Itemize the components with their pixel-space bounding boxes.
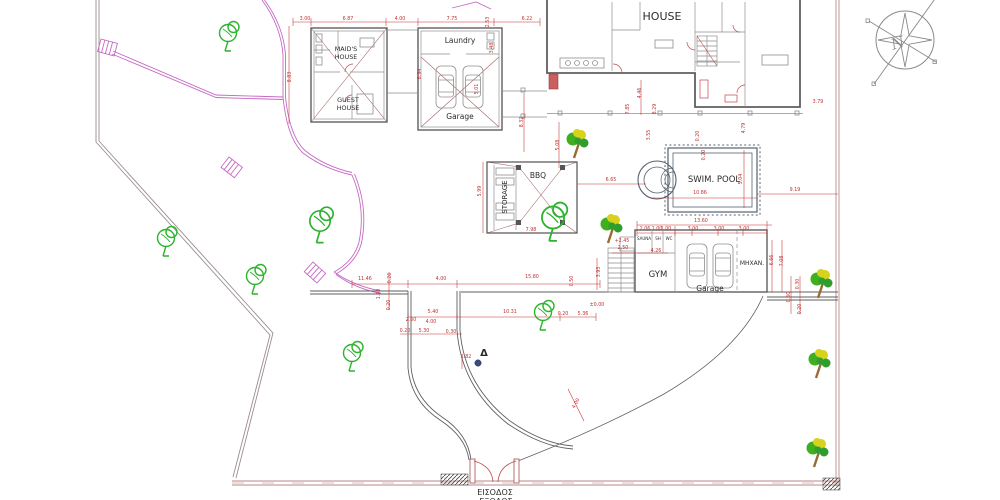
mhxan-label: MHXAN.	[740, 260, 764, 267]
corner-hatch-block	[823, 478, 840, 490]
dimension-label: 5.01	[474, 84, 480, 95]
dimension-label: 4.00	[426, 319, 437, 325]
entrance-gate: ΕΙΣΟΔΟΣ ΕΞΟΔΟΣ	[441, 459, 519, 500]
dimension-label: 5.40	[428, 309, 439, 315]
gate-post-left	[470, 459, 475, 483]
tree-outline	[220, 22, 240, 52]
guest-house-label-line2: HOUSE	[337, 104, 360, 112]
dimension-label: 5.36	[578, 311, 589, 317]
dimension-label: 8.94	[417, 69, 423, 80]
dimension-label: 6.22	[522, 16, 533, 22]
dimension-label: 15.80	[525, 274, 539, 280]
gym-stairs	[608, 248, 634, 292]
house-label: HOUSE	[643, 10, 682, 23]
dimension-label: 1.82	[461, 354, 472, 360]
dimension-label: +2.45	[615, 238, 630, 244]
delta-symbol: Δ	[480, 348, 488, 359]
car	[713, 244, 733, 288]
dimension-label: 13.60	[694, 218, 708, 224]
dimension-label: 3.00	[714, 226, 725, 232]
dimension-label: 7.85	[625, 104, 631, 115]
maids-house-label-line1: MAID'S	[335, 45, 358, 53]
dimension-label: 3.00	[688, 226, 699, 232]
maids-guest-house: MAID'S HOUSE GUEST HOUSE	[311, 28, 387, 122]
survey-point-dot	[475, 360, 481, 366]
sauna-label: SAUNA	[637, 236, 651, 241]
storage-label: STORAGE	[501, 180, 509, 213]
compass-north-arrow: N	[866, 0, 937, 86]
dimension-label: 8.32	[519, 117, 525, 128]
dimension-label: 4.46	[637, 88, 643, 99]
dimension-label: 6.87	[343, 16, 354, 22]
property-boundary	[96, 0, 840, 490]
main-house: HOUSE	[502, 0, 803, 118]
gym-garage-building: SAUNA SH WC GYM Garage MHXAN.	[608, 230, 767, 293]
gym-label: GYM	[649, 270, 668, 280]
dimension-label: 2.53	[485, 17, 491, 28]
site-plan: ΕΙΣΟΔΟΣ ΕΞΟΔΟΣ MAID'S HOUSE GUEST HOUSE	[0, 0, 1000, 500]
car	[436, 66, 456, 108]
tree-clump	[567, 129, 589, 158]
tree-clump	[807, 438, 829, 467]
dimension-label: 2.60	[406, 317, 417, 323]
car	[463, 66, 483, 108]
dimension-label: 6.66	[769, 255, 775, 266]
gate-hatch-block	[441, 474, 468, 485]
tree-outline	[344, 342, 364, 372]
dimension-label: 3.48	[489, 43, 495, 54]
dimension-label: 5.99	[477, 186, 483, 197]
house-stairs	[697, 36, 717, 66]
car	[687, 244, 707, 288]
tree-outline	[158, 227, 178, 257]
dimension-label: 6.65	[606, 177, 617, 183]
dimension-label: 3.55	[646, 130, 652, 141]
dimension-label: 7.98	[526, 227, 537, 233]
dimension-label: 0.20	[695, 131, 701, 142]
dimension-label: 3.79	[813, 99, 824, 105]
dimension-label: ±0.00	[590, 302, 605, 308]
dimension-label: 8.29	[652, 104, 658, 115]
dimension-label: 0.26	[387, 273, 393, 284]
dimension-label: 0.60	[786, 292, 792, 303]
dimension-label: 0.30	[446, 329, 457, 335]
dimension-label: 0.50	[569, 276, 575, 287]
wc-label: WC	[666, 236, 673, 241]
survey-marker: Δ	[475, 348, 488, 366]
dimension-label: 2.50	[618, 245, 629, 251]
dimension-label: 0.20	[400, 328, 411, 334]
dimension-label: 7.75	[447, 16, 458, 22]
dimension-label: 5.04	[738, 174, 744, 185]
dimension-label: 3.93	[596, 267, 602, 278]
sh-label: SH	[655, 236, 661, 241]
dimension-label: 0.20	[386, 300, 392, 311]
bbq-label: BBQ	[530, 171, 546, 180]
sofa	[549, 74, 558, 89]
dimension-label: 4.79	[741, 123, 747, 134]
dimension-label: 0.30	[795, 279, 801, 290]
dimension-label: 3.00	[739, 226, 750, 232]
dimension-label: 9.19	[790, 187, 801, 193]
trees-layer	[158, 22, 833, 468]
laundry-garage-building: Laundry Garage	[387, 28, 502, 130]
dimension-label: 0.20	[701, 150, 707, 161]
laundry-label: Laundry	[445, 36, 476, 45]
tree-outline	[247, 265, 267, 295]
dimension-label: 4.00	[571, 397, 581, 409]
dimension-label: 5.08	[555, 140, 561, 151]
garage-bottom-label: Garage	[696, 284, 724, 293]
dimension-label: 3.00	[300, 16, 311, 22]
dimension-label: 10.31	[503, 309, 517, 315]
north-letter: N	[888, 32, 908, 54]
dimension-label: 4.00	[395, 16, 406, 22]
dimension-label: 0.20	[558, 311, 569, 317]
tree-outline	[310, 207, 333, 242]
tree-clump	[811, 269, 833, 298]
garden-paths	[98, 0, 491, 294]
gate-post-right	[514, 459, 519, 483]
dimension-label: 8.83	[287, 72, 293, 83]
guest-house-label-line1: GUEST	[337, 96, 359, 104]
dimension-label: 11.46	[358, 276, 372, 282]
dimension-label: 5.30	[419, 328, 430, 334]
dimension-label: 4.00	[436, 276, 447, 282]
garage-top-label: Garage	[446, 112, 474, 121]
dimension-label: 1.00	[661, 226, 672, 232]
dimension-label: 4.26	[651, 248, 662, 254]
entrance-label-line1: ΕΙΣΟΔΟΣ	[477, 488, 513, 497]
tree-outline	[535, 301, 555, 331]
dimension-label: 1.60	[376, 289, 382, 300]
tree-clump	[809, 349, 831, 378]
dimension-label: 0.20	[797, 304, 803, 315]
dimension-label: 7.08	[779, 256, 785, 267]
driveway-walls	[310, 291, 838, 461]
dimension-label: 2.06	[640, 226, 651, 232]
dimension-label: 10.86	[693, 190, 707, 196]
swim-pool-label: SWIM. POOL	[688, 175, 741, 185]
tree-outline	[542, 203, 567, 241]
maids-house-label-line2: HOUSE	[335, 53, 358, 61]
